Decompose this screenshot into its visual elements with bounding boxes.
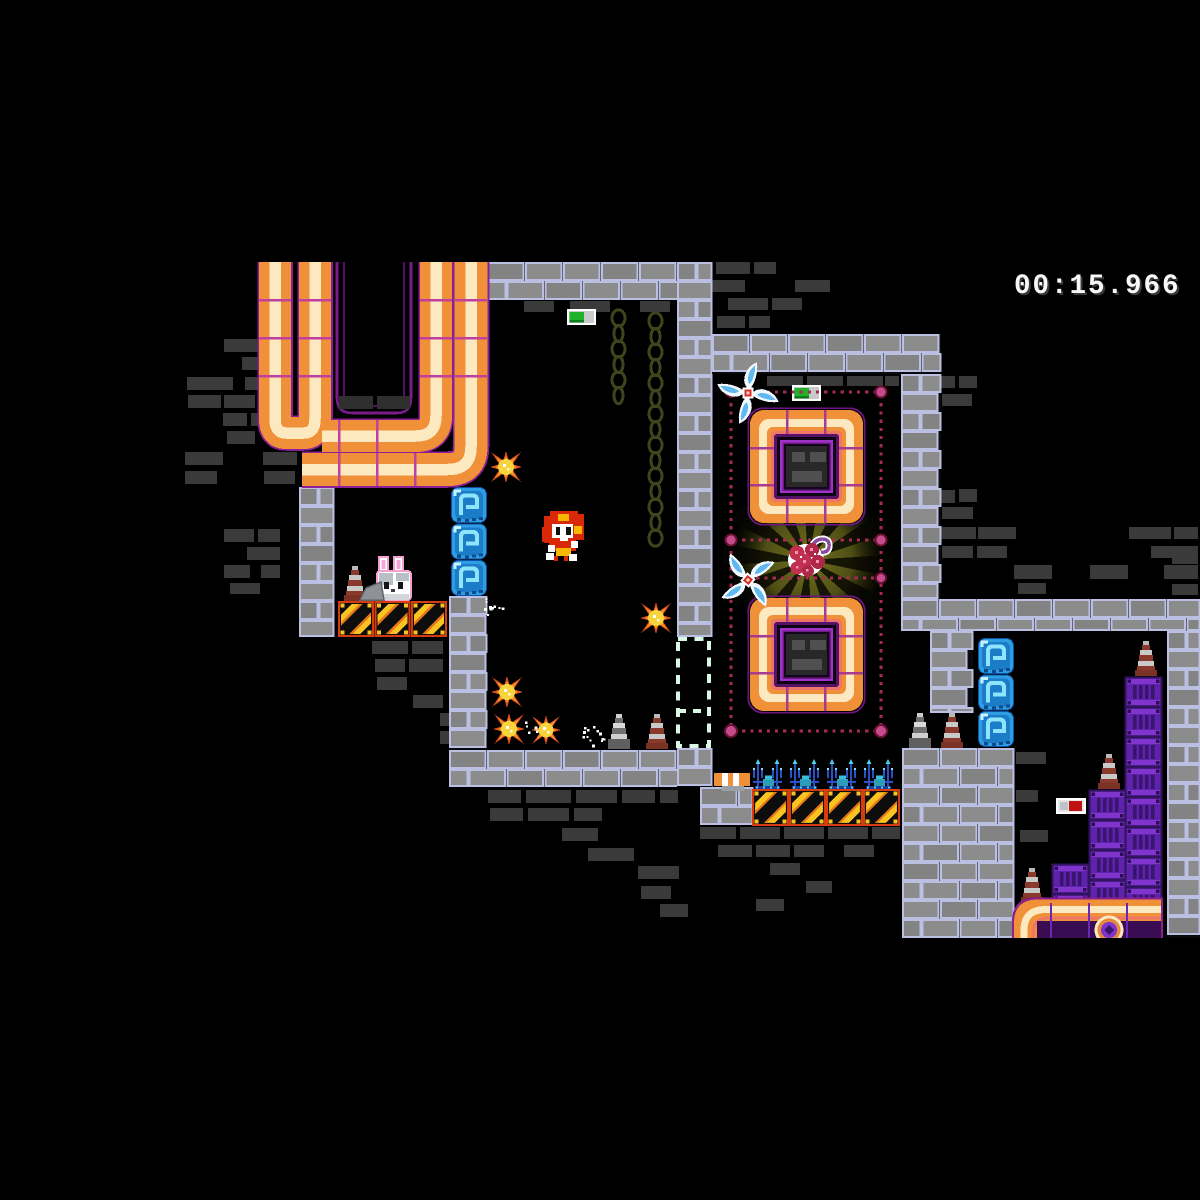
svg-text:00:15.966: 00:15.966	[1014, 271, 1181, 302]
